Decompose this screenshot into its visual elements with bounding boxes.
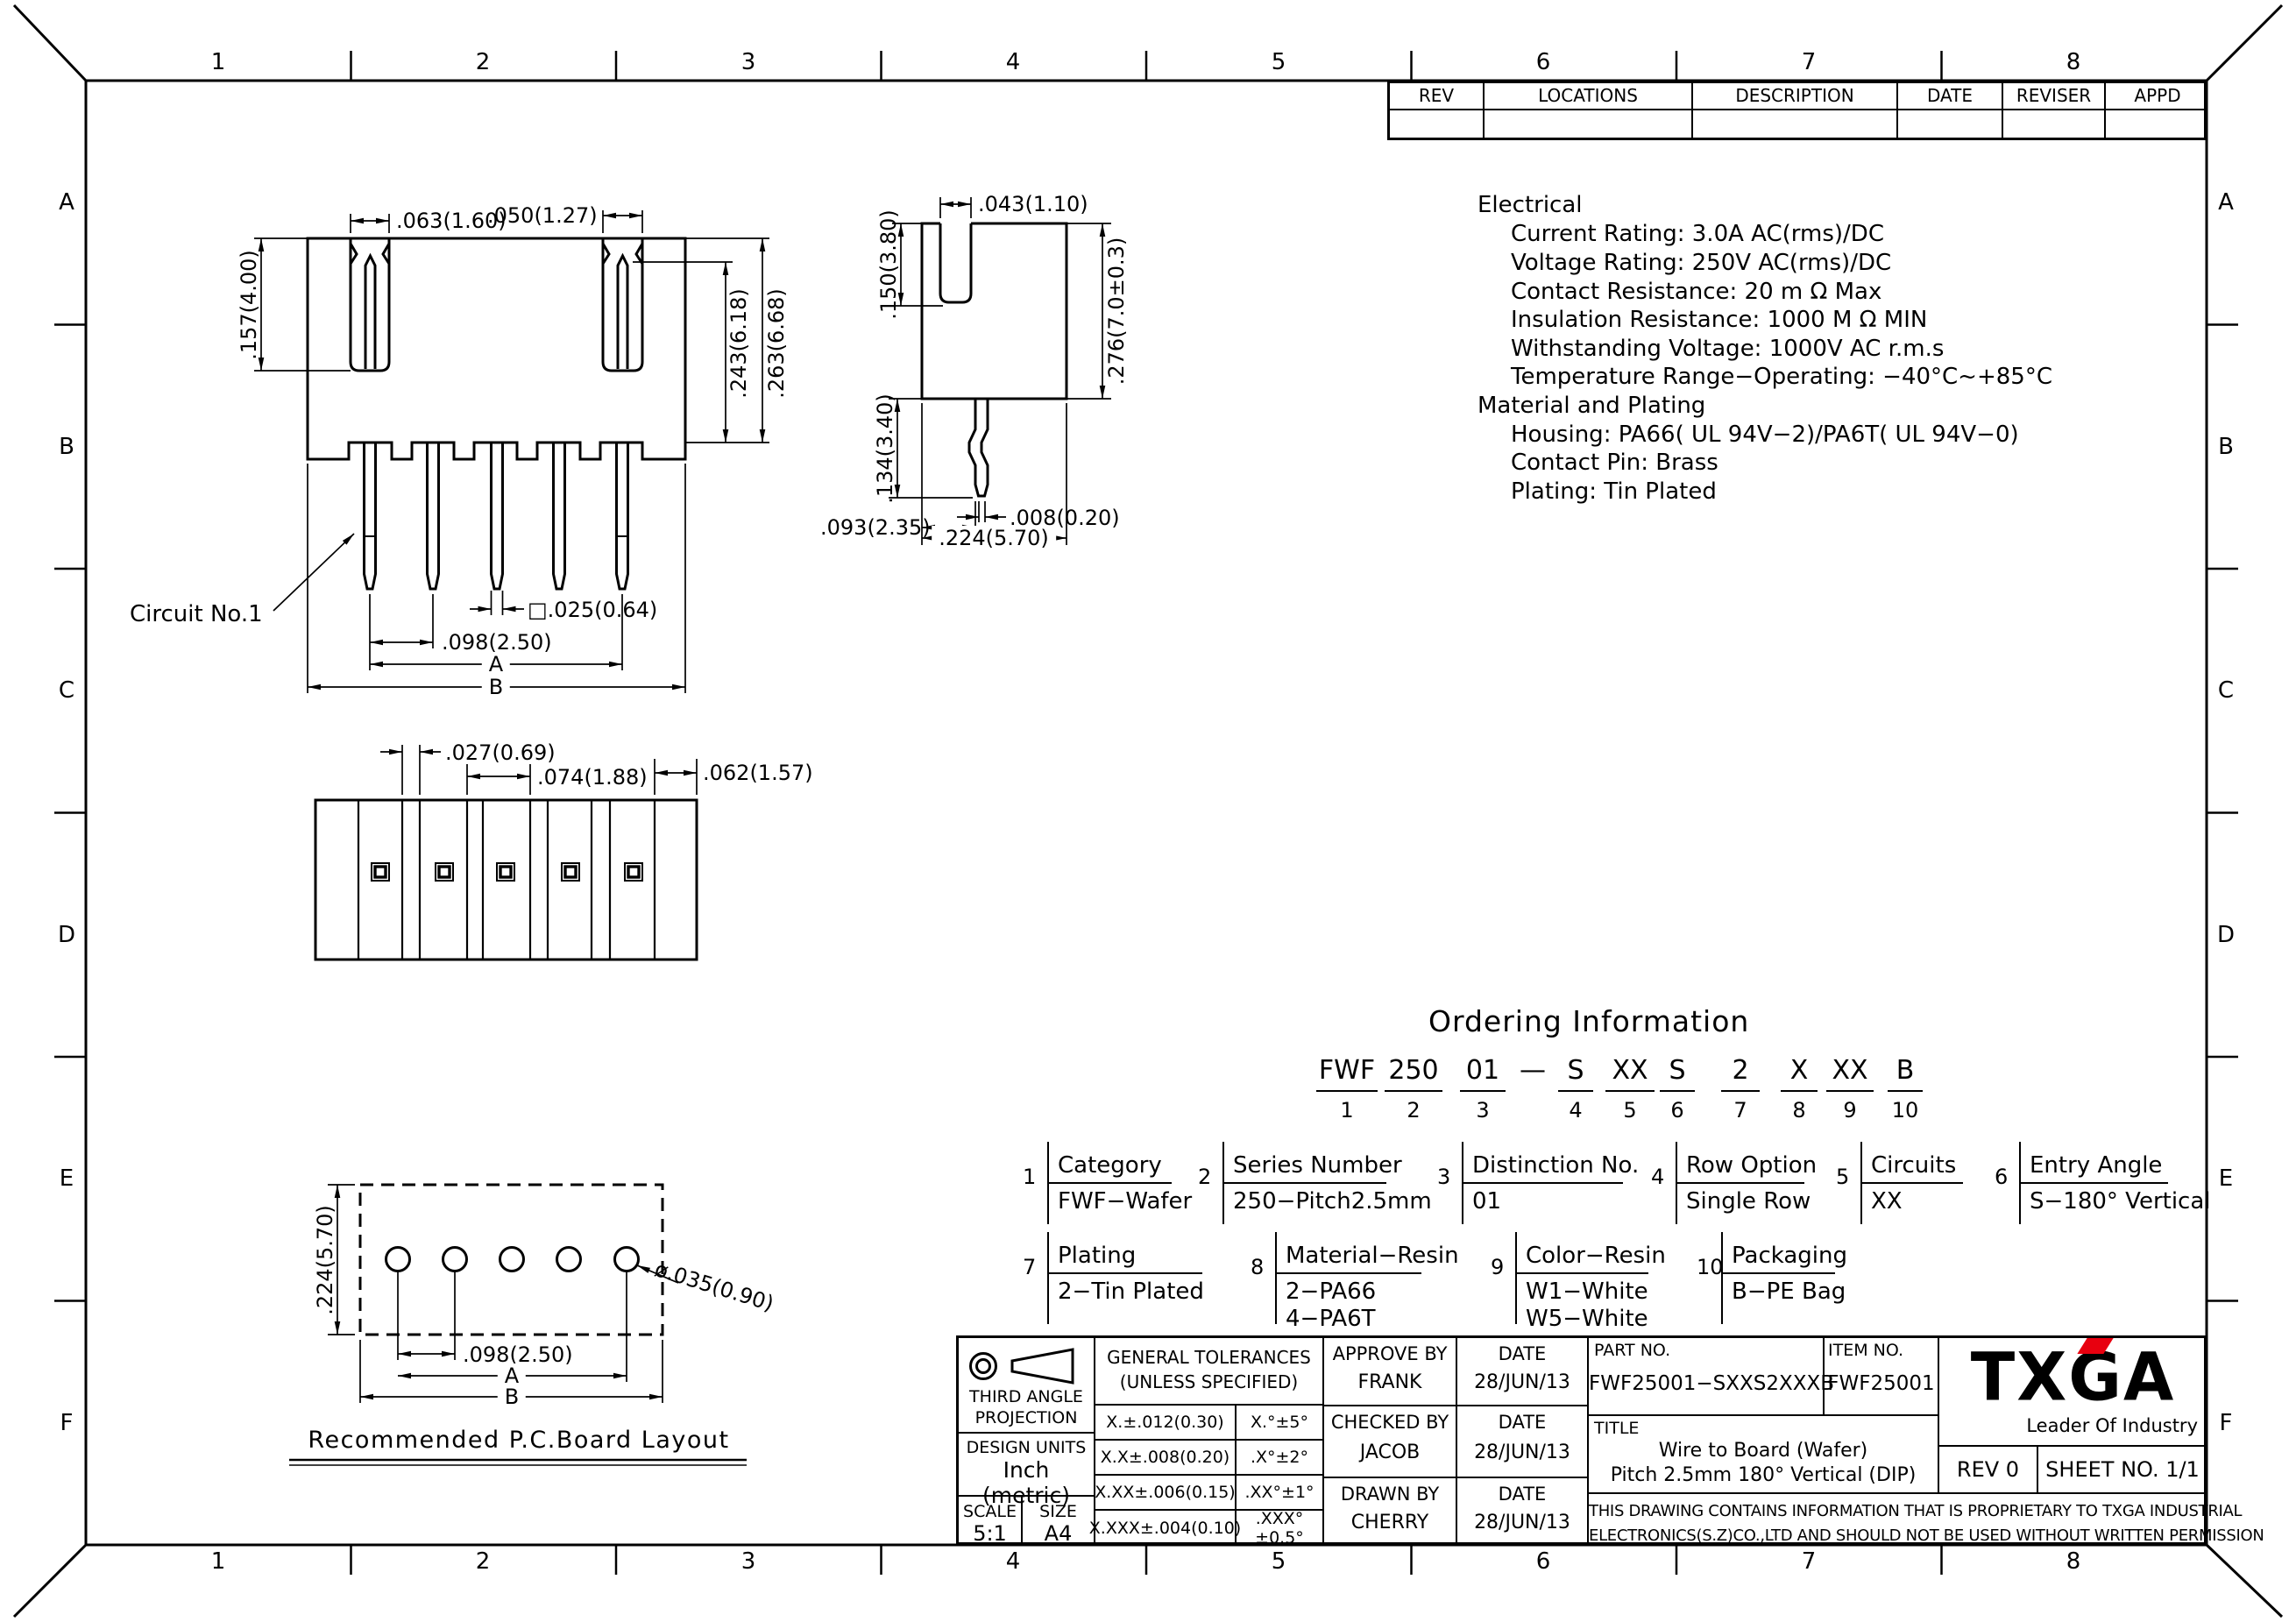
group-value: 2−PA66 bbox=[1286, 1278, 1421, 1306]
dim-label: .093(2.35) bbox=[820, 515, 915, 540]
front-view-dim-lines bbox=[254, 210, 769, 693]
group-num: 3 bbox=[1437, 1165, 1450, 1189]
group-num: 2 bbox=[1198, 1165, 1211, 1189]
sheet-no-value: SHEET NO. 1/1 bbox=[2038, 1447, 2207, 1492]
dim-label: .074(1.88) bbox=[537, 765, 648, 790]
code-text: 250 bbox=[1385, 1055, 1442, 1092]
code-segment: 250 2 bbox=[1385, 1055, 1442, 1123]
group-num: 4 bbox=[1651, 1165, 1664, 1189]
tol-angular-cell: .X°±2° bbox=[1237, 1441, 1324, 1476]
code-text: B bbox=[1888, 1055, 1923, 1092]
group-value: W1−White bbox=[1526, 1278, 1648, 1306]
tol-angular: .X°±2° bbox=[1237, 1441, 1322, 1474]
tolerances-header-cell: GENERAL TOLERANCES (UNLESS SPECIFIED) bbox=[1095, 1338, 1324, 1406]
grid-col-label: 1 bbox=[211, 1548, 226, 1575]
dim-label: .150(3.80) bbox=[876, 209, 901, 320]
approve-by-cell: APPROVE BY FRANK bbox=[1324, 1338, 1457, 1406]
grid-col-label: 1 bbox=[211, 49, 226, 75]
group-label: Series Number bbox=[1224, 1142, 1386, 1184]
revision-row-divider bbox=[2002, 109, 2003, 138]
group-num: 8 bbox=[1251, 1255, 1264, 1279]
design-units-label: DESIGN UNITS bbox=[959, 1434, 1094, 1457]
proprietary-cell: THIS DRAWING CONTAINS INFORMATION THAT I… bbox=[1589, 1494, 2207, 1545]
dim-label: .224(5.70) bbox=[932, 526, 1056, 550]
ordering-group-plating: 7 Plating 2−Tin Plated bbox=[1047, 1232, 1202, 1324]
tol-linear: X.XX±.006(0.15) bbox=[1095, 1476, 1235, 1509]
revision-col-reviser: REVISER bbox=[2003, 83, 2106, 109]
projection-label-line1: THIRD ANGLE bbox=[959, 1387, 1094, 1406]
revision-row-divider bbox=[1896, 109, 1898, 138]
dim-label: □.025(0.64) bbox=[528, 598, 657, 622]
code-segment: S 6 bbox=[1660, 1055, 1695, 1123]
drawn-by-cell: DRAWN BY CHERRY bbox=[1324, 1478, 1457, 1545]
grid-col-label: 3 bbox=[741, 49, 756, 75]
grid-row-label: C bbox=[2218, 677, 2234, 704]
date-value: 28/JUN/13 bbox=[1457, 1433, 1587, 1463]
code-segment: XX 9 bbox=[1826, 1055, 1874, 1123]
group-label: Material−Resin bbox=[1277, 1232, 1421, 1274]
grid-row-label: B bbox=[59, 434, 74, 460]
group-label: Row Option bbox=[1677, 1142, 1804, 1184]
sheet-no-cell: SHEET NO. 1/1 bbox=[2038, 1447, 2207, 1494]
dim-label: .043(1.10) bbox=[978, 192, 1088, 216]
group-num: 6 bbox=[1995, 1165, 2008, 1189]
revision-row-divider bbox=[2104, 109, 2106, 138]
tol-linear: X.X±.008(0.20) bbox=[1095, 1441, 1235, 1474]
item-no-cell: ITEM NO. FWF25001 bbox=[1825, 1338, 1939, 1416]
scale-label: SCALE bbox=[959, 1497, 1021, 1521]
bottom-view-drawing bbox=[315, 800, 697, 960]
rev-cell: REV 0 bbox=[1939, 1447, 2038, 1494]
spec-line: Contact Resistance: 20 m Ω Max bbox=[1511, 279, 1881, 305]
dim-label: A bbox=[482, 652, 510, 676]
date-label: DATE bbox=[1457, 1338, 1587, 1364]
tol-linear-cell: X.X±.008(0.20) bbox=[1095, 1441, 1237, 1476]
group-label: Packaging bbox=[1723, 1232, 1835, 1274]
code-segment: X 8 bbox=[1781, 1055, 1818, 1123]
projection-label-line2: PROJECTION bbox=[959, 1408, 1094, 1427]
date-value: 28/JUN/13 bbox=[1457, 1364, 1587, 1393]
code-segment: B 10 bbox=[1888, 1055, 1923, 1123]
grid-col-label: 6 bbox=[1536, 1548, 1551, 1575]
code-num: 3 bbox=[1460, 1098, 1506, 1123]
tol-angular: .XXX°±0.5° bbox=[1237, 1511, 1322, 1545]
proprietary-line2: ELECTRONICS(S.Z)CO.,LTD AND SHOULD NOT B… bbox=[1589, 1524, 2207, 1548]
spec-line: Current Rating: 3.0A AC(rms)/DC bbox=[1511, 221, 1884, 247]
group-num: 9 bbox=[1491, 1255, 1504, 1279]
group-label: Category bbox=[1049, 1142, 1172, 1184]
approval-role: CHECKED BY bbox=[1324, 1406, 1456, 1433]
circuit-no-label: Circuit No.1 bbox=[130, 601, 263, 627]
tol-angular: .XX°±1° bbox=[1237, 1476, 1322, 1509]
code-num: 7 bbox=[1721, 1098, 1760, 1123]
group-value: 4−PA6T bbox=[1286, 1306, 1421, 1333]
design-units-cell: DESIGN UNITS Inch (metric) bbox=[959, 1434, 1095, 1497]
spec-line: Contact Pin: Brass bbox=[1511, 450, 1718, 476]
size-label: SIZE bbox=[1023, 1497, 1094, 1521]
grid-col-label: 2 bbox=[476, 49, 491, 75]
approval-role: DRAWN BY bbox=[1324, 1478, 1456, 1505]
grid-col-label: 7 bbox=[1802, 49, 1817, 75]
grid-col-label: 8 bbox=[2066, 49, 2081, 75]
size-cell: SIZE A4 bbox=[1023, 1497, 1095, 1545]
revision-col-rev: REV bbox=[1390, 83, 1485, 109]
txga-logo: TXGA bbox=[1939, 1339, 2207, 1416]
spec-line: Housing: PA66( UL 94V−2)/PA6T( UL 94V−0) bbox=[1511, 421, 2019, 448]
item-no-value: FWF25001 bbox=[1825, 1360, 1938, 1395]
revision-col-date: DATE bbox=[1898, 83, 2003, 109]
size-value: A4 bbox=[1023, 1521, 1094, 1546]
grid-row-label: D bbox=[2217, 922, 2235, 948]
tol-angular-cell: X.°±5° bbox=[1237, 1406, 1324, 1441]
grid-row-label: F bbox=[60, 1410, 74, 1436]
tolerances-title2: (UNLESS SPECIFIED) bbox=[1095, 1368, 1322, 1392]
engineering-drawing-sheet: { "sheet": { "cols": ["1","2","3","4","5… bbox=[0, 0, 2296, 1622]
tol-angular: X.°±5° bbox=[1237, 1406, 1322, 1439]
group-num: 1 bbox=[1023, 1165, 1036, 1189]
group-value: 250−Pitch2.5mm bbox=[1233, 1188, 1386, 1215]
dim-label: .263(6.68) bbox=[764, 288, 789, 399]
dim-label: .224(5.70) bbox=[313, 1205, 337, 1315]
group-value: S−180° Vertical bbox=[2030, 1188, 2168, 1215]
drawn-date-cell: DATE 28/JUN/13 bbox=[1457, 1478, 1589, 1545]
code-segment: S 4 bbox=[1558, 1055, 1593, 1123]
part-no-label: PART NO. bbox=[1589, 1338, 1823, 1360]
revision-col-description: DESCRIPTION bbox=[1693, 83, 1898, 109]
rev-value: REV 0 bbox=[1939, 1447, 2037, 1492]
ordering-group-entry-angle: 6 Entry Angle S−180° Vertical bbox=[2019, 1142, 2168, 1224]
grid-row-label: F bbox=[2220, 1410, 2233, 1436]
code-num: 8 bbox=[1781, 1098, 1818, 1123]
grid-col-label: 7 bbox=[1802, 1548, 1817, 1575]
pcb-layout-caption: Recommended P.C.Board Layout bbox=[291, 1427, 747, 1454]
group-label: Plating bbox=[1049, 1232, 1202, 1274]
grid-col-label: 4 bbox=[1006, 1548, 1021, 1575]
code-segment: FWF 1 bbox=[1316, 1055, 1378, 1123]
code-num: 4 bbox=[1558, 1098, 1593, 1123]
part-no-cell: PART NO. FWF25001−SXXS2XXXB bbox=[1589, 1338, 1825, 1416]
ordering-group-packaging: 10 Packaging B−PE Bag bbox=[1721, 1232, 1835, 1324]
grid-col-label: 2 bbox=[476, 1548, 491, 1575]
ordering-title: Ordering Information bbox=[1428, 1004, 1749, 1038]
ordering-group-category: 1 Category FWF−Wafer bbox=[1047, 1142, 1172, 1224]
spec-line: Insulation Resistance: 1000 M Ω MIN bbox=[1511, 307, 1927, 333]
ordering-group-series: 2 Series Number 250−Pitch2.5mm bbox=[1222, 1142, 1386, 1224]
tol-angular-cell: .XXX°±0.5° bbox=[1237, 1511, 1324, 1545]
code-num: 5 bbox=[1605, 1098, 1655, 1123]
code-text: FWF bbox=[1316, 1055, 1378, 1092]
revision-table: REV LOCATIONS DESCRIPTION DATE REVISER A… bbox=[1387, 81, 2207, 140]
ordering-group-distinction: 3 Distinction No. 01 bbox=[1462, 1142, 1623, 1224]
group-value: B−PE Bag bbox=[1732, 1278, 1835, 1306]
logo-cell: TXGA Leader Of Industry bbox=[1939, 1338, 2207, 1447]
title-line2: Pitch 2.5mm 180° Vertical (DIP) bbox=[1589, 1462, 1938, 1486]
group-label: Distinction No. bbox=[1463, 1142, 1623, 1184]
grid-row-label: C bbox=[59, 677, 74, 704]
spec-line: Plating: Tin Plated bbox=[1511, 478, 1717, 505]
code-text: — bbox=[1514, 1055, 1551, 1090]
group-label: Color−Resin bbox=[1517, 1232, 1648, 1274]
checked-date-cell: DATE 28/JUN/13 bbox=[1457, 1406, 1589, 1478]
grid-row-label: A bbox=[59, 189, 74, 216]
tol-linear-cell: X.±.012(0.30) bbox=[1095, 1406, 1237, 1441]
tol-angular-cell: .XX°±1° bbox=[1237, 1476, 1324, 1511]
dim-label: .050(1.27) bbox=[487, 203, 596, 228]
approval-name: CHERRY bbox=[1324, 1505, 1456, 1533]
dim-label: .243(6.18) bbox=[726, 288, 751, 399]
date-label: DATE bbox=[1457, 1406, 1587, 1433]
group-num: 5 bbox=[1836, 1165, 1849, 1189]
pcb-layout-drawing bbox=[360, 1185, 663, 1335]
ordering-group-circuits: 5 Circuits XX bbox=[1860, 1142, 1963, 1224]
spec-line: Voltage Rating: 250V AC(rms)/DC bbox=[1511, 250, 1891, 276]
title-cell: TITLE Wire to Board (Wafer) Pitch 2.5mm … bbox=[1589, 1416, 1939, 1494]
group-label: Entry Angle bbox=[2021, 1142, 2168, 1184]
title-label: TITLE bbox=[1589, 1416, 1938, 1438]
ordering-group-color: 9 Color−Resin W1−White W5−White bbox=[1515, 1232, 1648, 1324]
grid-row-label: E bbox=[60, 1165, 74, 1192]
third-angle-projection-cone-icon bbox=[1010, 1347, 1078, 1385]
ordering-group-row-option: 4 Row Option Single Row bbox=[1676, 1142, 1804, 1224]
date-value: 28/JUN/13 bbox=[1457, 1505, 1587, 1533]
tol-linear: X.±.012(0.30) bbox=[1095, 1406, 1235, 1439]
group-num: 10 bbox=[1697, 1255, 1724, 1279]
code-num: 9 bbox=[1826, 1098, 1874, 1123]
code-text: S bbox=[1558, 1055, 1593, 1092]
grid-col-label: 5 bbox=[1272, 49, 1286, 75]
code-text: 01 bbox=[1460, 1055, 1506, 1092]
checked-by-cell: CHECKED BY JACOB bbox=[1324, 1406, 1457, 1478]
dim-label: .098(2.50) bbox=[442, 630, 552, 655]
dim-label: B bbox=[498, 1385, 526, 1409]
approval-role: APPROVE BY bbox=[1324, 1338, 1456, 1364]
code-segment: 2 7 bbox=[1721, 1055, 1760, 1123]
code-segment: XX 5 bbox=[1605, 1055, 1655, 1123]
code-segment-dash: — bbox=[1514, 1055, 1551, 1096]
revision-row-divider bbox=[1691, 109, 1693, 138]
tol-linear: X.XXX±.004(0.10) bbox=[1095, 1511, 1235, 1545]
spec-line: Temperature Range−Operating: −40°C~+85°C bbox=[1511, 364, 2052, 390]
approve-date-cell: DATE 28/JUN/13 bbox=[1457, 1338, 1589, 1406]
approval-name: FRANK bbox=[1324, 1364, 1456, 1393]
code-segment: 01 3 bbox=[1460, 1055, 1506, 1123]
code-text: X bbox=[1781, 1055, 1818, 1092]
group-num: 7 bbox=[1023, 1255, 1036, 1279]
material-title: Material and Plating bbox=[1478, 393, 1705, 419]
code-num: 1 bbox=[1316, 1098, 1378, 1123]
grid-col-label: 4 bbox=[1006, 49, 1021, 75]
code-num: 2 bbox=[1385, 1098, 1442, 1123]
logo-tagline: Leader Of Industry bbox=[2026, 1415, 2198, 1436]
grid-row-label: E bbox=[2219, 1165, 2233, 1192]
front-view-drawing bbox=[308, 238, 685, 589]
revision-col-appd: APPD bbox=[2106, 83, 2209, 109]
dim-label: B bbox=[482, 675, 510, 699]
revision-row-divider bbox=[1483, 109, 1485, 138]
group-value: W5−White bbox=[1526, 1306, 1648, 1333]
side-view-drawing bbox=[922, 223, 1067, 496]
dim-label: .157(4.00) bbox=[237, 250, 261, 360]
grid-col-label: 3 bbox=[741, 1548, 756, 1575]
part-no-value: FWF25001−SXXS2XXXB bbox=[1589, 1360, 1823, 1395]
code-text: XX bbox=[1605, 1055, 1655, 1092]
title-line1: Wire to Board (Wafer) bbox=[1589, 1438, 1938, 1462]
revision-col-locations: LOCATIONS bbox=[1485, 83, 1693, 109]
grid-col-label: 5 bbox=[1272, 1548, 1286, 1575]
dim-label: .062(1.57) bbox=[703, 761, 813, 785]
group-value: 2−Tin Plated bbox=[1058, 1278, 1202, 1306]
dim-label: .134(3.40) bbox=[873, 393, 897, 504]
group-value: 01 bbox=[1472, 1188, 1623, 1215]
dim-label: .027(0.69) bbox=[445, 740, 556, 765]
approval-name: JACOB bbox=[1324, 1433, 1456, 1463]
projection-cell: THIRD ANGLE PROJECTION bbox=[959, 1338, 1095, 1434]
scale-cell: SCALE 5:1 bbox=[959, 1497, 1023, 1545]
tol-linear-cell: X.XX±.006(0.15) bbox=[1095, 1476, 1237, 1511]
group-value: FWF−Wafer bbox=[1058, 1188, 1172, 1215]
code-text: S bbox=[1660, 1055, 1695, 1092]
grid-row-label: B bbox=[2218, 434, 2234, 460]
dim-label: .276(7.0±0.3) bbox=[1104, 237, 1129, 386]
proprietary-line1: THIS DRAWING CONTAINS INFORMATION THAT I… bbox=[1589, 1499, 2207, 1524]
group-label: Circuits bbox=[1862, 1142, 1963, 1184]
ordering-group-material: 8 Material−Resin 2−PA66 4−PA6T bbox=[1275, 1232, 1421, 1324]
pcb-layout-dim-lines bbox=[289, 1185, 747, 1465]
group-value: Single Row bbox=[1686, 1188, 1804, 1215]
item-no-label: ITEM NO. bbox=[1825, 1338, 1938, 1360]
grid-row-label: A bbox=[2218, 189, 2234, 216]
group-value: XX bbox=[1871, 1188, 1963, 1215]
code-text: XX bbox=[1826, 1055, 1874, 1092]
code-text: 2 bbox=[1721, 1055, 1760, 1092]
title-block: THIRD ANGLE PROJECTION DESIGN UNITS Inch… bbox=[956, 1335, 2207, 1545]
electrical-title: Electrical bbox=[1478, 192, 1583, 218]
grid-row-label: D bbox=[58, 922, 75, 948]
tol-linear-cell: X.XXX±.004(0.10) bbox=[1095, 1511, 1237, 1545]
spec-line: Withstanding Voltage: 1000V AC r.m.s bbox=[1511, 336, 1944, 362]
grid-col-label: 6 bbox=[1536, 49, 1551, 75]
code-num: 10 bbox=[1888, 1098, 1923, 1123]
date-label: DATE bbox=[1457, 1478, 1587, 1505]
scale-value: 5:1 bbox=[959, 1521, 1021, 1546]
grid-col-label: 8 bbox=[2066, 1548, 2081, 1575]
third-angle-projection-circle-icon bbox=[969, 1352, 997, 1380]
tolerances-title1: GENERAL TOLERANCES bbox=[1095, 1338, 1322, 1368]
code-num: 6 bbox=[1660, 1098, 1695, 1123]
